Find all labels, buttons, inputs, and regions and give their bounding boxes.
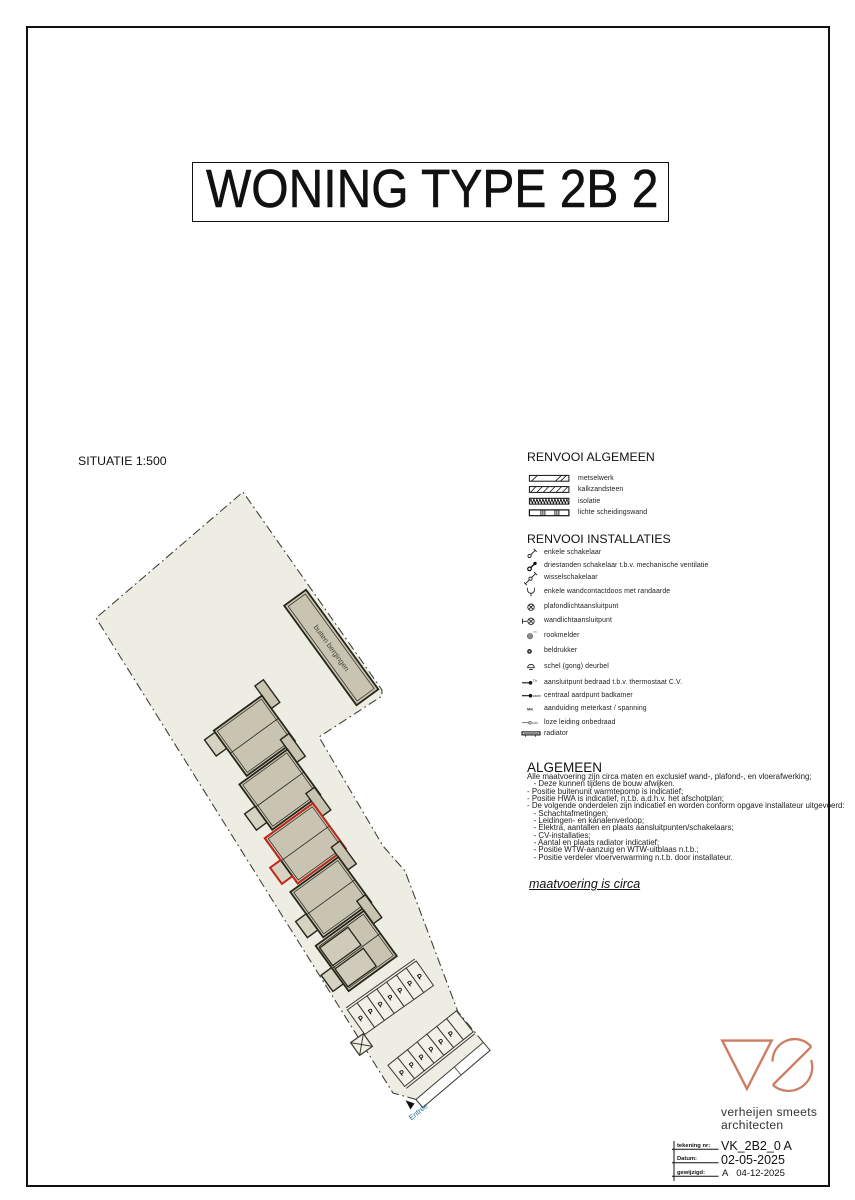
svg-text:loze: loze bbox=[532, 721, 538, 725]
svg-text:m: m bbox=[534, 630, 537, 634]
svg-text:Th: Th bbox=[533, 679, 537, 683]
svg-text:aarde: aarde bbox=[533, 694, 541, 698]
svg-text:MK: MK bbox=[527, 707, 533, 712]
